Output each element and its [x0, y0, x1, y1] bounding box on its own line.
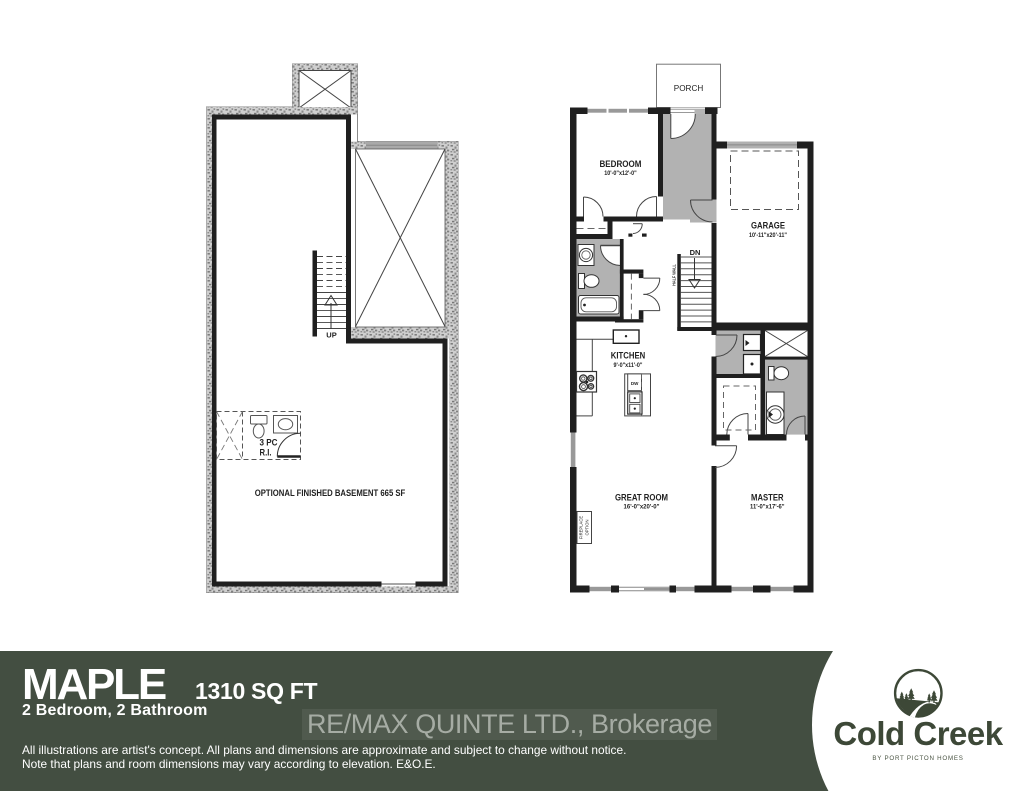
svg-text:GARAGE: GARAGE — [751, 221, 785, 232]
svg-text:10'-11"x20'-11": 10'-11"x20'-11" — [749, 232, 787, 239]
svg-text:BY PORT PICTON HOMES: BY PORT PICTON HOMES — [872, 755, 963, 762]
svg-text:KITCHEN: KITCHEN — [611, 350, 646, 361]
svg-text:11'-0"x17'-6": 11'-0"x17'-6" — [750, 504, 785, 511]
svg-text:HALF WALL: HALF WALL — [672, 264, 677, 286]
svg-text:OPTION: OPTION — [585, 519, 590, 535]
svg-text:R.I.: R.I. — [260, 448, 272, 458]
svg-text:FIREPLACE: FIREPLACE — [579, 516, 584, 539]
svg-text:10'-0"x12'-0": 10'-0"x12'-0" — [604, 170, 637, 177]
svg-text:MASTER: MASTER — [751, 492, 784, 503]
svg-text:GREAT ROOM: GREAT ROOM — [615, 492, 668, 503]
svg-text:PORCH: PORCH — [674, 83, 704, 93]
svg-text:9'-0"x11'-0": 9'-0"x11'-0" — [614, 362, 643, 369]
svg-text:OPTIONAL FINISHED BASEMENT 665: OPTIONAL FINISHED BASEMENT 665 SF — [255, 488, 406, 498]
svg-text:3 PC: 3 PC — [260, 438, 278, 448]
svg-text:DN: DN — [690, 248, 701, 257]
svg-text:BEDROOM: BEDROOM — [600, 159, 642, 170]
svg-text:Cold Creek: Cold Creek — [833, 715, 1003, 752]
svg-text:DW: DW — [631, 381, 639, 386]
svg-text:16'-0"x20'-0": 16'-0"x20'-0" — [624, 504, 660, 511]
svg-text:UP: UP — [326, 331, 336, 340]
